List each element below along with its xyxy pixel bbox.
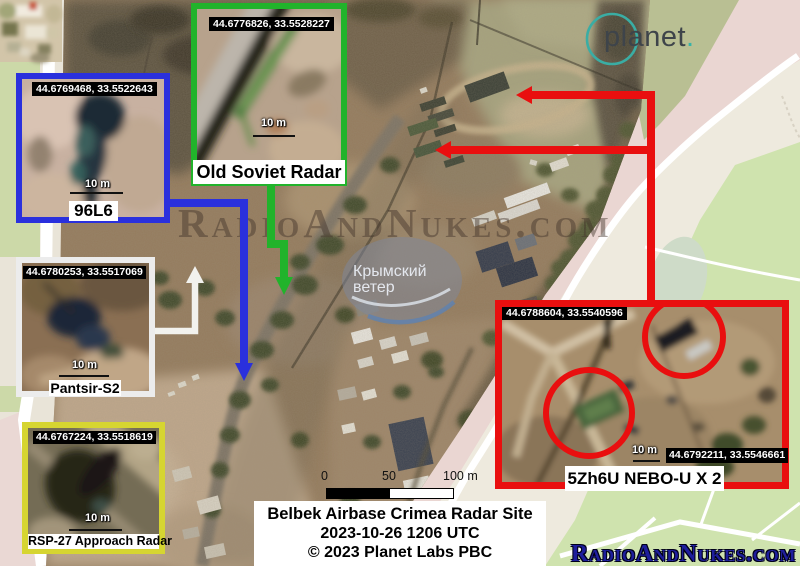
svg-text:Крымский: Крымский (353, 263, 427, 280)
svg-text:ветер: ветер (353, 279, 395, 296)
